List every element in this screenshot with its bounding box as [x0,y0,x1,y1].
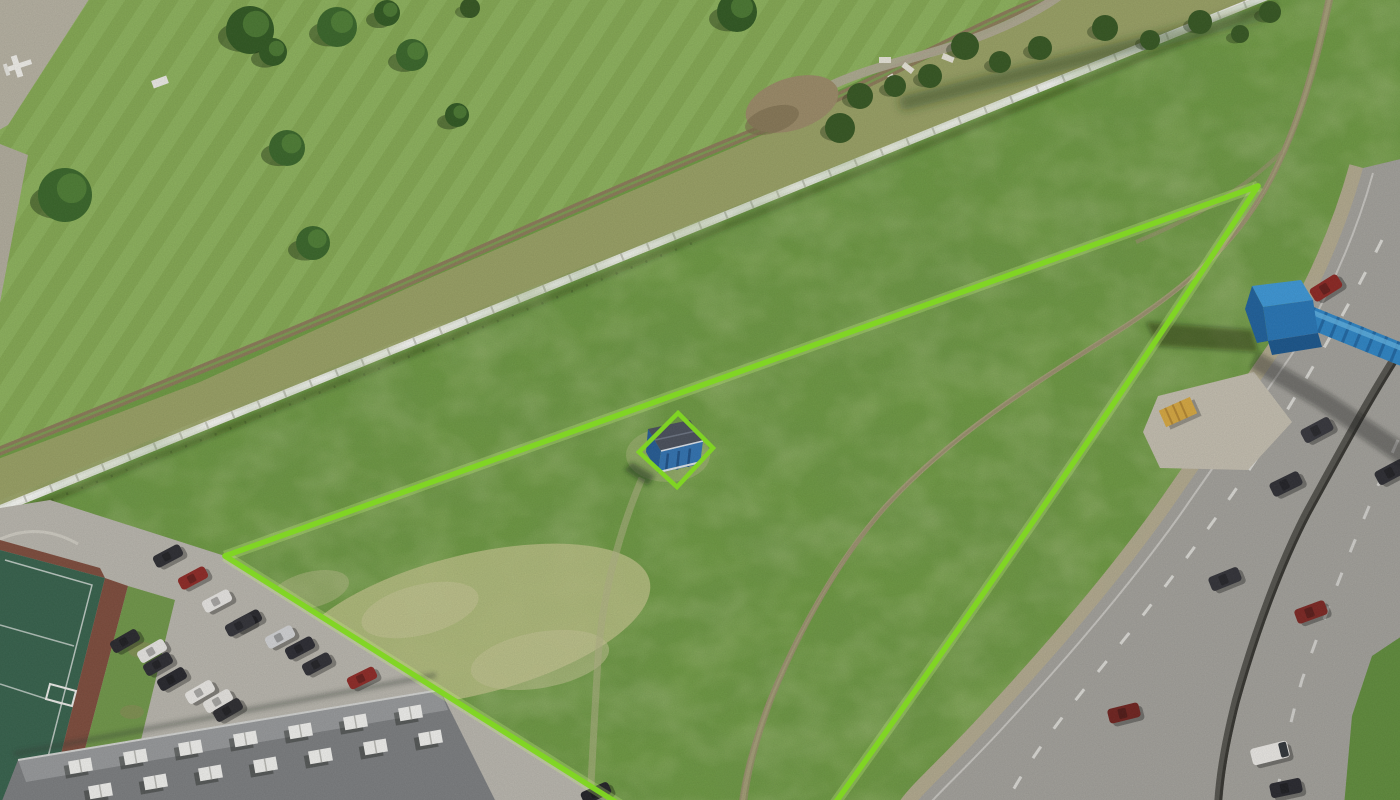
aerial-photo-canvas [0,0,1400,800]
aerial-photo [0,0,1400,800]
photo-grain [0,0,1400,800]
